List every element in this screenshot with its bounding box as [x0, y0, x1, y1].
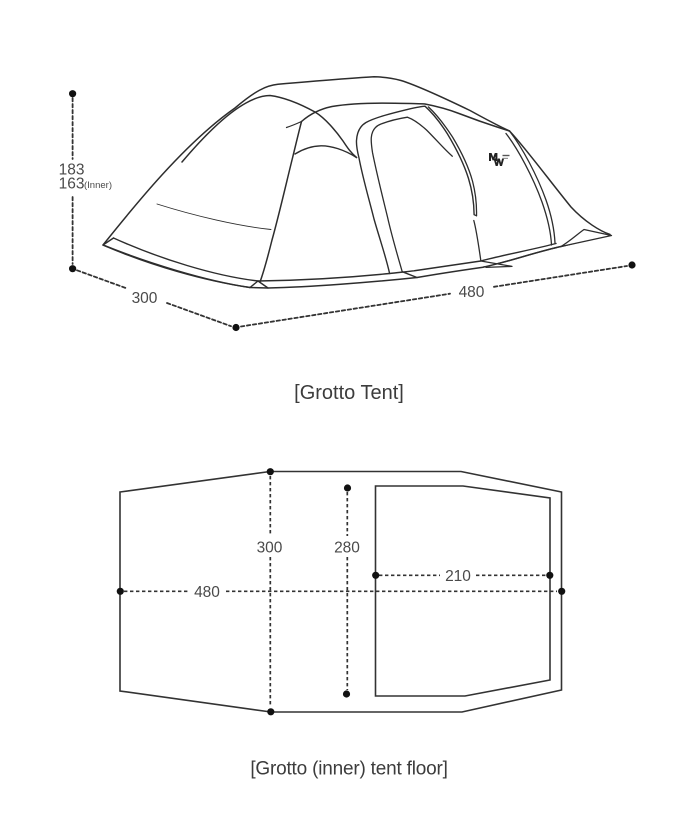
- svg-text:163: 163: [59, 176, 85, 193]
- svg-text:[Grotto (inner) tent floor]: [Grotto (inner) tent floor]: [250, 759, 447, 780]
- svg-text:300: 300: [132, 290, 158, 307]
- svg-text:210: 210: [445, 568, 471, 585]
- svg-text:280: 280: [334, 540, 360, 557]
- svg-text:480: 480: [459, 284, 485, 301]
- svg-text:300: 300: [257, 540, 283, 557]
- svg-text:(Inner): (Inner): [84, 180, 112, 191]
- svg-text:480: 480: [194, 584, 220, 601]
- svg-text:[Grotto Tent]: [Grotto Tent]: [294, 382, 404, 404]
